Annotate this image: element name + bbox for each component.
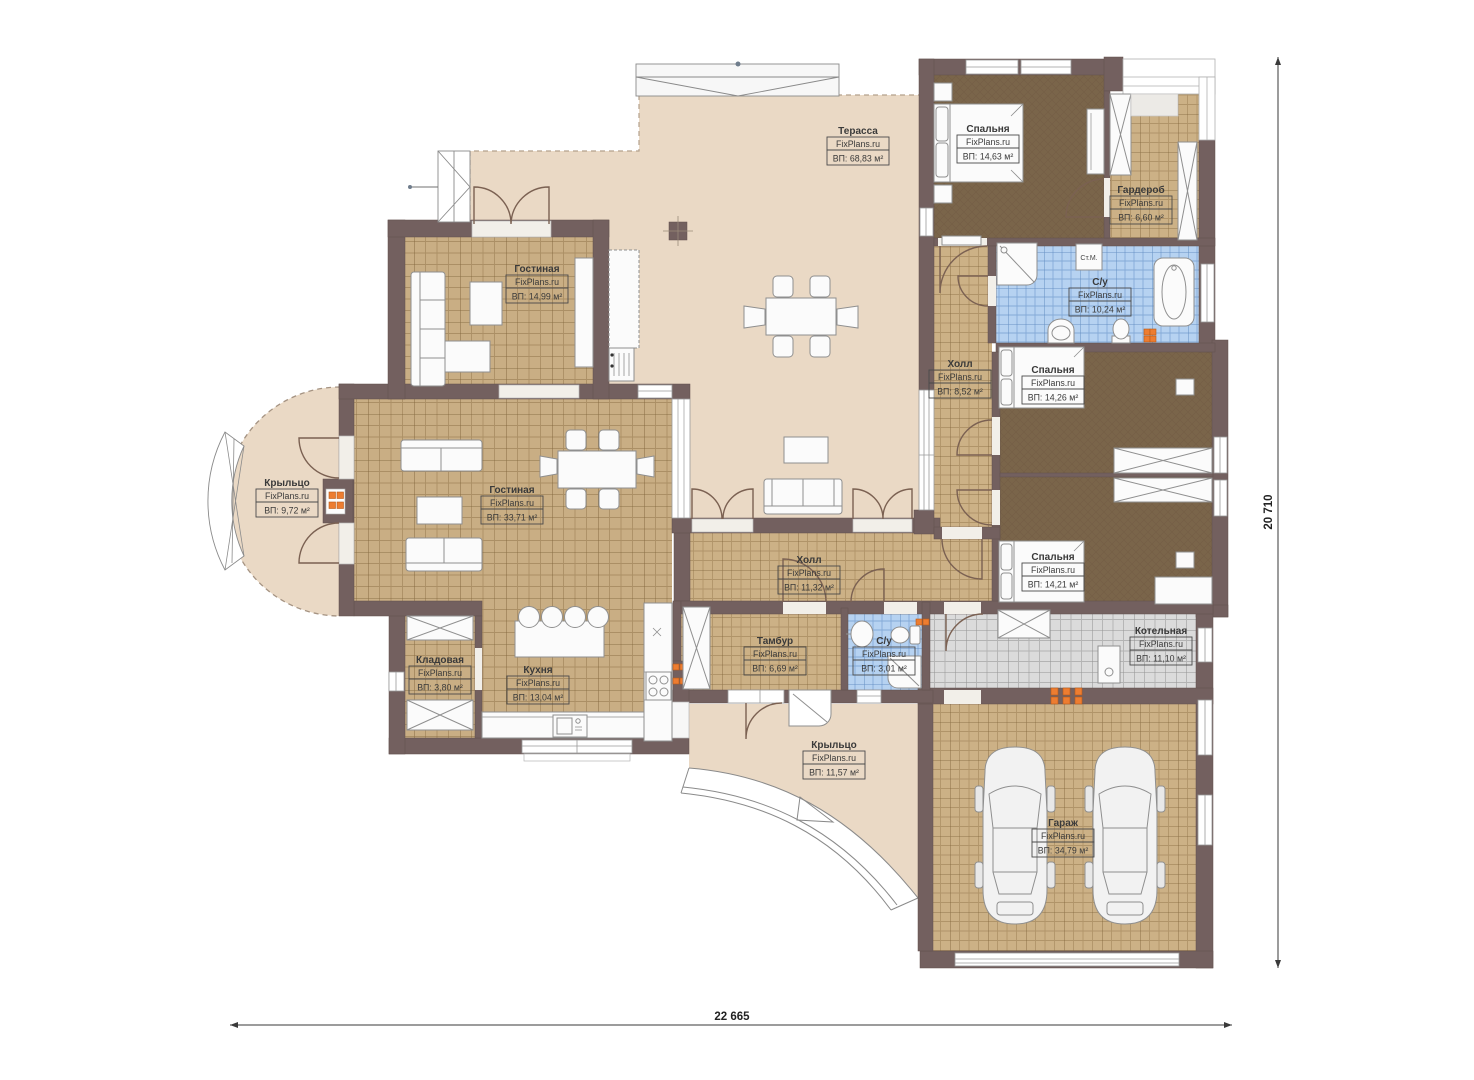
svg-text:FixPlans.ru: FixPlans.ru [1031,565,1075,575]
svg-text:Крыльцо: Крыльцо [811,740,857,751]
svg-text:Ст.М.: Ст.М. [1080,255,1097,262]
svg-text:Холл: Холл [947,359,972,370]
svg-text:ВП: 13,04 м²: ВП: 13,04 м² [513,693,564,703]
svg-text:FixPlans.ru: FixPlans.ru [490,498,534,508]
svg-text:ВП: 14,21 м²: ВП: 14,21 м² [1028,580,1079,590]
svg-text:Холл: Холл [796,555,821,566]
svg-text:FixPlans.ru: FixPlans.ru [1041,831,1085,841]
svg-text:С/у: С/у [876,636,892,647]
svg-text:С/у: С/у [1092,277,1108,288]
svg-text:ВП: 11,32 м²: ВП: 11,32 м² [784,583,834,593]
svg-text:FixPlans.ru: FixPlans.ru [1139,639,1183,649]
svg-text:ВП: 10,24 м²: ВП: 10,24 м² [1075,305,1126,315]
svg-text:FixPlans.ru: FixPlans.ru [862,649,906,659]
svg-text:ВП: 33,71 м²: ВП: 33,71 м² [487,513,538,523]
svg-text:ВП: 9,72 м²: ВП: 9,72 м² [264,506,310,516]
svg-text:Спальня: Спальня [966,124,1009,135]
svg-text:ВП: 8,52 м²: ВП: 8,52 м² [937,387,983,397]
svg-text:ВП: 11,10 м²: ВП: 11,10 м² [1136,654,1186,664]
svg-text:FixPlans.ru: FixPlans.ru [1119,198,1163,208]
svg-text:Спальня: Спальня [1031,365,1074,376]
svg-text:ВП: 34,79 м²: ВП: 34,79 м² [1038,846,1089,856]
svg-text:Кладовая: Кладовая [416,655,464,666]
svg-text:FixPlans.ru: FixPlans.ru [265,491,309,501]
svg-text:22 665: 22 665 [714,1011,750,1023]
svg-text:Гараж: Гараж [1048,818,1079,829]
svg-text:ВП: 14,99 м²: ВП: 14,99 м² [512,292,563,302]
svg-text:Крыльцо: Крыльцо [264,478,310,489]
svg-text:FixPlans.ru: FixPlans.ru [812,753,856,763]
svg-text:Тамбур: Тамбур [757,635,793,647]
svg-text:ВП: 11,57 м²: ВП: 11,57 м² [809,768,859,778]
svg-text:FixPlans.ru: FixPlans.ru [1031,378,1075,388]
svg-text:ВП: 3,01 м²: ВП: 3,01 м² [861,664,907,674]
svg-text:FixPlans.ru: FixPlans.ru [1078,290,1122,300]
svg-text:FixPlans.ru: FixPlans.ru [836,139,880,149]
svg-text:FixPlans.ru: FixPlans.ru [938,372,982,382]
svg-text:FixPlans.ru: FixPlans.ru [515,277,559,287]
svg-text:Гостиная: Гостиная [514,264,559,275]
svg-text:ВП: 6,69 м²: ВП: 6,69 м² [752,664,798,674]
svg-text:Гардероб: Гардероб [1117,184,1164,196]
svg-text:FixPlans.ru: FixPlans.ru [516,678,560,688]
svg-text:FixPlans.ru: FixPlans.ru [787,568,831,578]
svg-text:ВП: 6,60 м²: ВП: 6,60 м² [1118,213,1164,223]
svg-text:FixPlans.ru: FixPlans.ru [418,668,462,678]
svg-text:Гостиная: Гостиная [489,485,534,496]
svg-text:Кухня: Кухня [523,665,552,676]
svg-text:Котельная: Котельная [1135,626,1188,637]
svg-text:20 710: 20 710 [1263,494,1275,529]
svg-text:FixPlans.ru: FixPlans.ru [966,137,1010,147]
svg-text:Терасса: Терасса [838,126,878,137]
svg-text:Спальня: Спальня [1031,552,1074,563]
svg-text:ВП: 14,26 м²: ВП: 14,26 м² [1028,393,1079,403]
svg-text:FixPlans.ru: FixPlans.ru [753,649,797,659]
svg-text:ВП: 68,83 м²: ВП: 68,83 м² [833,154,884,164]
svg-text:ВП: 3,80 м²: ВП: 3,80 м² [417,683,463,693]
svg-text:ВП: 14,63 м²: ВП: 14,63 м² [963,152,1014,162]
